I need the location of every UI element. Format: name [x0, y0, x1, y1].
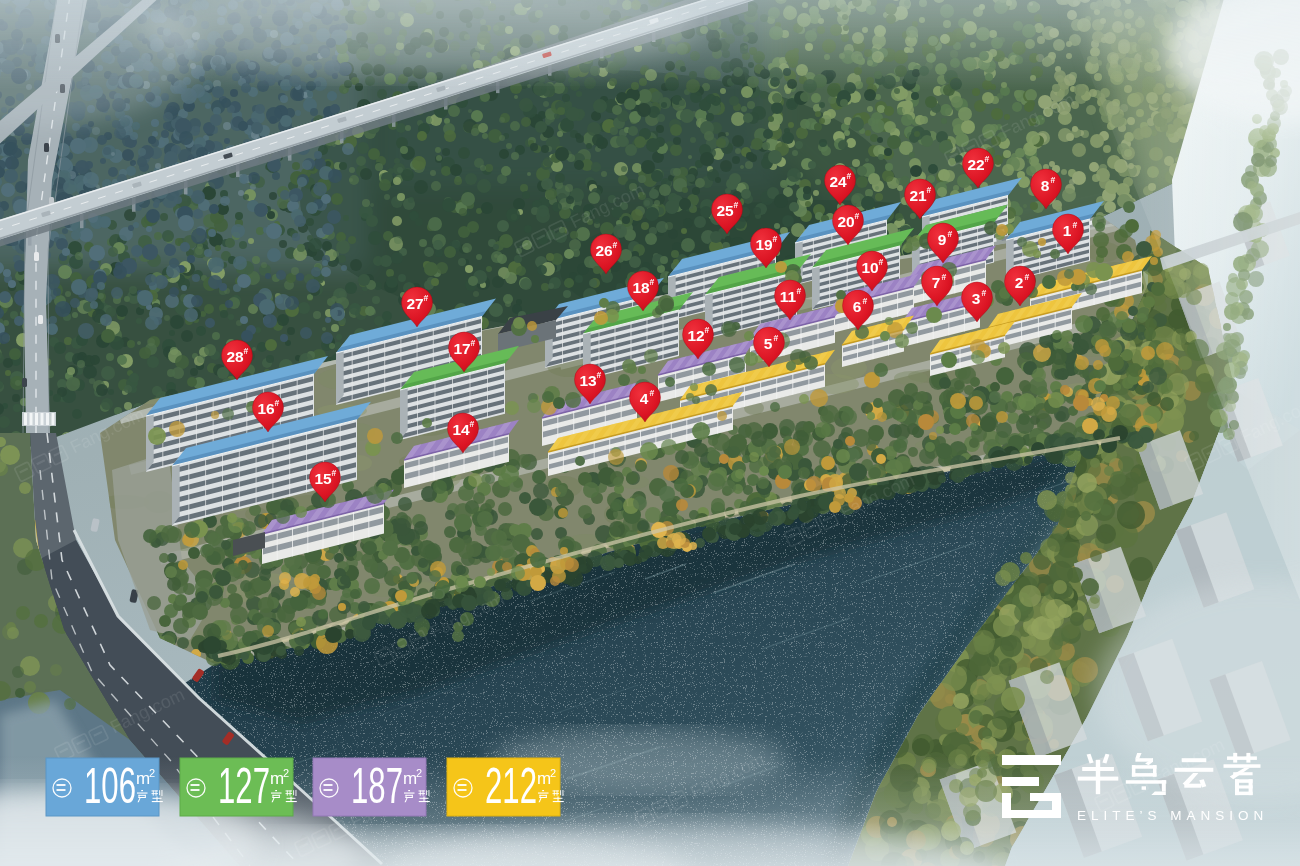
- svg-text:#: #: [948, 229, 953, 239]
- svg-text:ELITE’S MANSION: ELITE’S MANSION: [1077, 808, 1268, 823]
- svg-text:#: #: [734, 200, 739, 210]
- svg-text:28: 28: [226, 348, 244, 365]
- svg-text:9: 9: [938, 231, 947, 248]
- svg-text:#: #: [774, 333, 779, 343]
- svg-text:27: 27: [406, 295, 423, 312]
- svg-text:#: #: [424, 293, 429, 303]
- svg-text:3: 3: [972, 290, 981, 307]
- svg-text:#: #: [773, 234, 778, 244]
- svg-text:2: 2: [149, 767, 155, 779]
- svg-text:127: 127: [218, 758, 270, 814]
- svg-text:20: 20: [837, 213, 854, 230]
- svg-text:13: 13: [579, 372, 597, 389]
- svg-text:106: 106: [84, 758, 136, 814]
- svg-text:24: 24: [829, 173, 847, 190]
- svg-text:#: #: [471, 338, 476, 348]
- svg-text:4: 4: [640, 390, 649, 407]
- svg-text:10: 10: [861, 259, 878, 276]
- svg-text:2: 2: [1015, 274, 1024, 291]
- svg-text:#: #: [863, 296, 868, 306]
- svg-text:#: #: [942, 272, 947, 282]
- svg-text:#: #: [275, 398, 280, 408]
- svg-text:2: 2: [416, 767, 422, 779]
- svg-text:1: 1: [1063, 222, 1072, 239]
- svg-text:#: #: [985, 154, 990, 164]
- svg-text:#: #: [650, 388, 655, 398]
- svg-text:#: #: [847, 171, 852, 181]
- svg-text:#: #: [650, 277, 655, 287]
- svg-text:18: 18: [632, 279, 650, 296]
- svg-text:#: #: [597, 370, 602, 380]
- svg-text:14: 14: [452, 421, 470, 438]
- svg-text:17: 17: [453, 340, 470, 357]
- svg-text:5: 5: [764, 335, 773, 352]
- svg-text:22: 22: [967, 156, 984, 173]
- svg-text:15: 15: [314, 470, 332, 487]
- svg-text:#: #: [1025, 272, 1030, 282]
- svg-text:#: #: [244, 346, 249, 356]
- svg-text:16: 16: [257, 400, 275, 417]
- svg-text:#: #: [613, 240, 618, 250]
- svg-text:#: #: [879, 257, 884, 267]
- svg-text:11: 11: [780, 288, 797, 305]
- svg-text:#: #: [1073, 220, 1078, 230]
- svg-text:6: 6: [853, 298, 862, 315]
- svg-text:212: 212: [485, 758, 537, 814]
- svg-text:187: 187: [351, 758, 403, 814]
- svg-text:#: #: [332, 468, 337, 478]
- svg-text:#: #: [797, 286, 802, 296]
- svg-text:#: #: [470, 419, 475, 429]
- svg-text:7: 7: [932, 274, 941, 291]
- svg-text:#: #: [855, 211, 860, 221]
- svg-text:26: 26: [595, 242, 613, 259]
- svg-text:19: 19: [755, 236, 773, 253]
- svg-text:2: 2: [283, 767, 289, 779]
- svg-text:2: 2: [550, 767, 556, 779]
- svg-text:#: #: [705, 325, 710, 335]
- svg-text:21: 21: [909, 187, 927, 204]
- svg-text:#: #: [927, 185, 932, 195]
- svg-text:#: #: [1051, 175, 1056, 185]
- svg-text:8: 8: [1041, 177, 1050, 194]
- svg-text:12: 12: [687, 327, 704, 344]
- svg-text:25: 25: [716, 202, 734, 219]
- svg-text:#: #: [982, 288, 987, 298]
